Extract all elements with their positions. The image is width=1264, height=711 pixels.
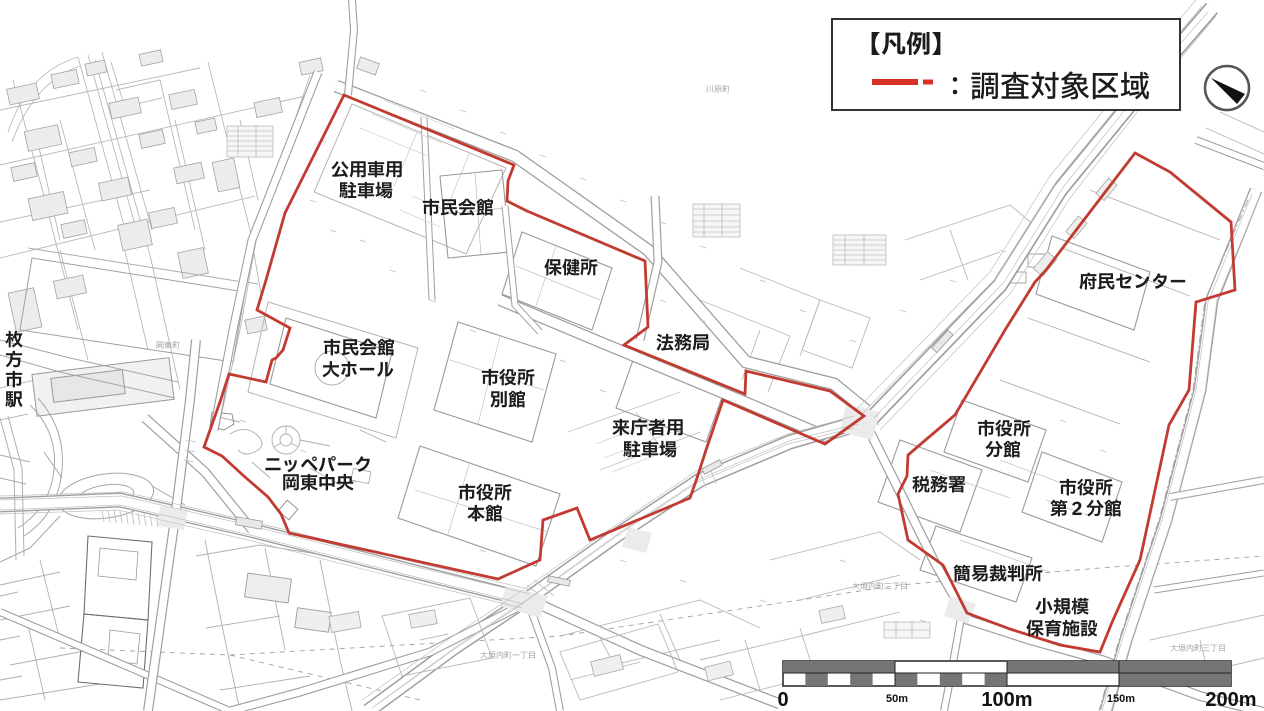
svg-text:0: 0 (777, 689, 788, 711)
svg-text:50m: 50m (886, 693, 908, 705)
svg-text:100m: 100m (981, 689, 1032, 711)
svg-text:200m: 200m (1205, 689, 1256, 711)
svg-text:150m: 150m (1107, 693, 1135, 705)
